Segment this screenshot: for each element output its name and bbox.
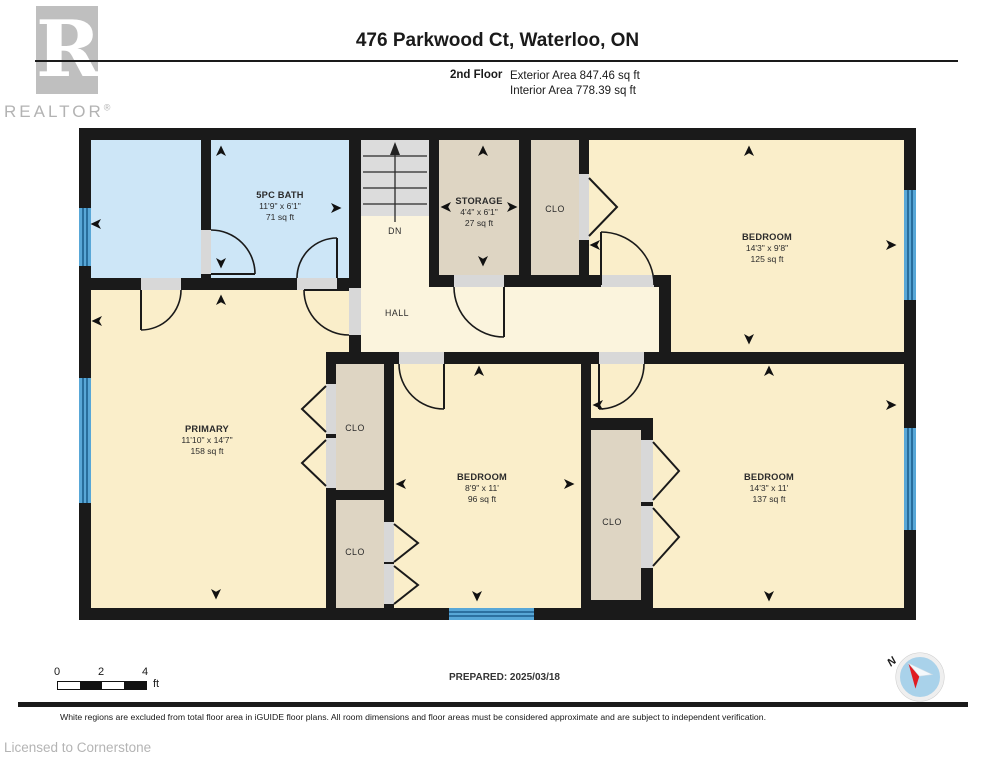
label-bedroom-br-name: BEDROOM	[744, 472, 794, 482]
label-bedroom-br-dims: 14'3" x 11'	[750, 483, 789, 493]
floor-label: 2nd Floor	[450, 69, 502, 81]
label-clo-mr: CLO	[602, 517, 622, 527]
scale-tick-2: 2	[98, 666, 104, 678]
label-bedroom-br-area: 137 sq ft	[753, 494, 787, 504]
label-bath-name: 5PC BATH	[256, 190, 303, 200]
area-summary: Exterior Area 847.46 sq ft Interior Area…	[510, 69, 640, 99]
label-stairs-dn: DN	[388, 226, 402, 236]
disclaimer-text: White regions are excluded from total fl…	[60, 712, 965, 722]
label-bedroom-mid-area: 96 sq ft	[468, 494, 497, 504]
label-bedroom-tr-dims: 14'3" x 9'8"	[746, 243, 788, 253]
room-hall-landing	[361, 216, 429, 352]
floor-plan-page: R REALTOR® 476 Parkwood Ct, Waterloo, ON…	[0, 0, 995, 768]
label-storage-dims: 4'4" x 6'1"	[460, 207, 498, 217]
scale-unit: ft	[153, 678, 159, 690]
label-bedroom-mid-name: BEDROOM	[457, 472, 507, 482]
room-clo-mr	[591, 430, 641, 600]
label-primary-area: 158 sq ft	[191, 446, 225, 456]
exterior-area: Exterior Area 847.46 sq ft	[510, 69, 640, 84]
label-primary-name: PRIMARY	[185, 424, 230, 434]
page-title: 476 Parkwood Ct, Waterloo, ON	[0, 30, 995, 52]
label-hall: HALL	[385, 308, 409, 318]
label-storage-name: STORAGE	[455, 196, 502, 206]
room-hall	[429, 287, 659, 352]
license-text: Licensed to Cornerstone	[4, 740, 151, 755]
interior-area: Interior Area 778.39 sq ft	[510, 84, 640, 99]
floor-plan-drawing: 5PC BATH 11'9" x 6'1" 71 sq ft STORAGE 4…	[79, 128, 916, 620]
room-bath-anteroom	[91, 140, 201, 278]
label-primary-dims: 11'10" x 14'7"	[181, 435, 232, 445]
label-clo-ml-b: CLO	[345, 547, 365, 557]
label-bedroom-tr-area: 125 sq ft	[751, 254, 785, 264]
label-clo-top: CLO	[545, 204, 565, 214]
footer-divider	[18, 702, 968, 707]
realtor-logo: R REALTOR®	[36, 6, 166, 122]
scale-bar: 0 2 4 ft	[57, 666, 237, 696]
label-bedroom-mid-dims: 8'9" x 11'	[465, 483, 499, 493]
realtor-wordmark: REALTOR®	[4, 102, 166, 122]
label-bath-dims: 11'9" x 6'1"	[259, 201, 301, 211]
title-divider	[35, 60, 958, 62]
label-bedroom-tr-name: BEDROOM	[742, 232, 792, 242]
prepared-date: PREPARED: 2025/03/18	[449, 672, 560, 683]
compass-icon	[893, 650, 947, 704]
label-clo-ml-a: CLO	[345, 423, 365, 433]
scale-tick-0: 0	[54, 666, 60, 678]
scale-tick-4: 4	[142, 666, 148, 678]
label-bath-area: 71 sq ft	[266, 212, 295, 222]
label-storage-area: 27 sq ft	[465, 218, 494, 228]
scale-bar-segments	[57, 681, 147, 690]
